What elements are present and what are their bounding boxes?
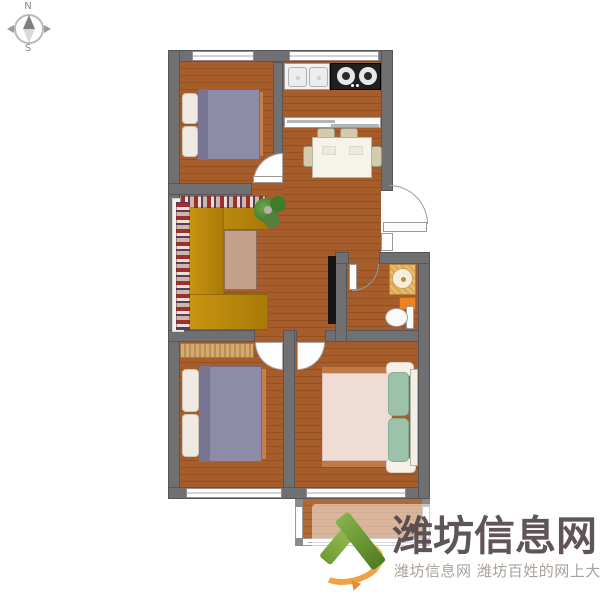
window-bedroom-bottom-left <box>186 488 282 498</box>
compass-south-label: S <box>6 44 50 54</box>
wall-bedroom-living <box>168 183 252 195</box>
window-kitchen <box>289 51 379 61</box>
door-leaf-bedroom-top-left <box>253 176 283 183</box>
sofa-bottom-arm <box>188 294 268 330</box>
toilet-bowl <box>385 308 408 327</box>
sink-basin <box>288 67 307 87</box>
double-bed <box>180 366 266 462</box>
sink-basin <box>309 67 328 87</box>
potted-plant-icon <box>254 196 288 230</box>
floor-plan-canvas: N S <box>0 0 600 600</box>
wall-right-lower <box>418 252 430 499</box>
wardrobe <box>180 343 254 358</box>
pillow <box>388 372 409 416</box>
wall-bathroom-top-left <box>335 252 349 264</box>
blanket <box>322 373 392 461</box>
watermark: 潍坊信息网 潍坊信息网 潍坊百姓的网上大集 <box>312 504 600 598</box>
brand-text: 潍坊信息网 <box>392 516 597 557</box>
compass-west-arrow <box>7 25 14 33</box>
doorway-floor <box>349 252 379 264</box>
compass-east-arrow <box>44 25 51 33</box>
pillow <box>182 126 198 157</box>
blanket-fold <box>198 89 208 160</box>
entrance-door-leaf <box>383 222 427 232</box>
tv <box>328 256 336 324</box>
brand-tagline: 潍坊信息网 潍坊百姓的网上大集 <box>394 564 600 579</box>
compass-north-label: N <box>6 2 50 12</box>
doorway-floor <box>255 330 283 342</box>
double-bed <box>320 362 418 474</box>
pillow <box>182 93 198 124</box>
stove <box>330 63 381 90</box>
stove-burner <box>359 67 377 85</box>
wall-right-upper <box>381 50 393 191</box>
pass-through-window <box>284 117 381 128</box>
double-bed <box>180 89 265 160</box>
balcony-post <box>295 538 303 546</box>
pillow <box>182 414 199 457</box>
headboard <box>410 369 418 466</box>
balcony-post <box>295 499 303 507</box>
coffee-table <box>224 230 257 290</box>
dining-chair <box>371 146 382 167</box>
kitchen-sink-unit <box>284 63 330 90</box>
pillow <box>182 369 199 412</box>
compass-needle-north <box>23 15 35 29</box>
wall-bathroom-left <box>335 252 347 342</box>
window-bedroom-bottom-right <box>306 488 406 498</box>
blanket-fold <box>199 366 210 462</box>
wall-between-bedrooms <box>283 330 295 499</box>
entrance-door-jamb <box>381 233 393 251</box>
brand-logo-icon <box>314 510 388 592</box>
washbasin <box>392 268 413 289</box>
window-bedroom-top-left <box>192 51 254 61</box>
compass-needle-south <box>23 29 35 43</box>
entrance-door-swing <box>389 185 428 224</box>
doorway-floor <box>252 183 283 195</box>
stove-burner <box>337 67 355 85</box>
wall-bathroom-top-right <box>379 252 430 264</box>
pillow <box>388 418 409 462</box>
sofa-cushions-left <box>176 202 190 330</box>
compass-icon: N S <box>6 2 50 54</box>
dining-table <box>312 137 372 178</box>
doorway-floor <box>297 330 325 342</box>
